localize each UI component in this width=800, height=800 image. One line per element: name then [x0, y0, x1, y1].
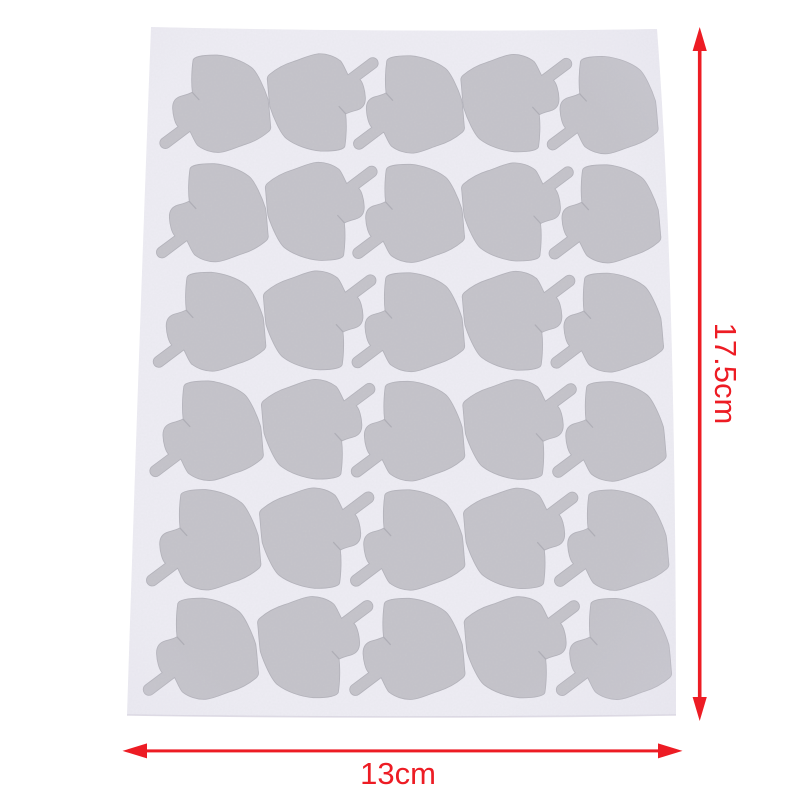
- svg-text:17.5cm: 17.5cm: [708, 323, 743, 425]
- svg-text:13cm: 13cm: [360, 756, 436, 791]
